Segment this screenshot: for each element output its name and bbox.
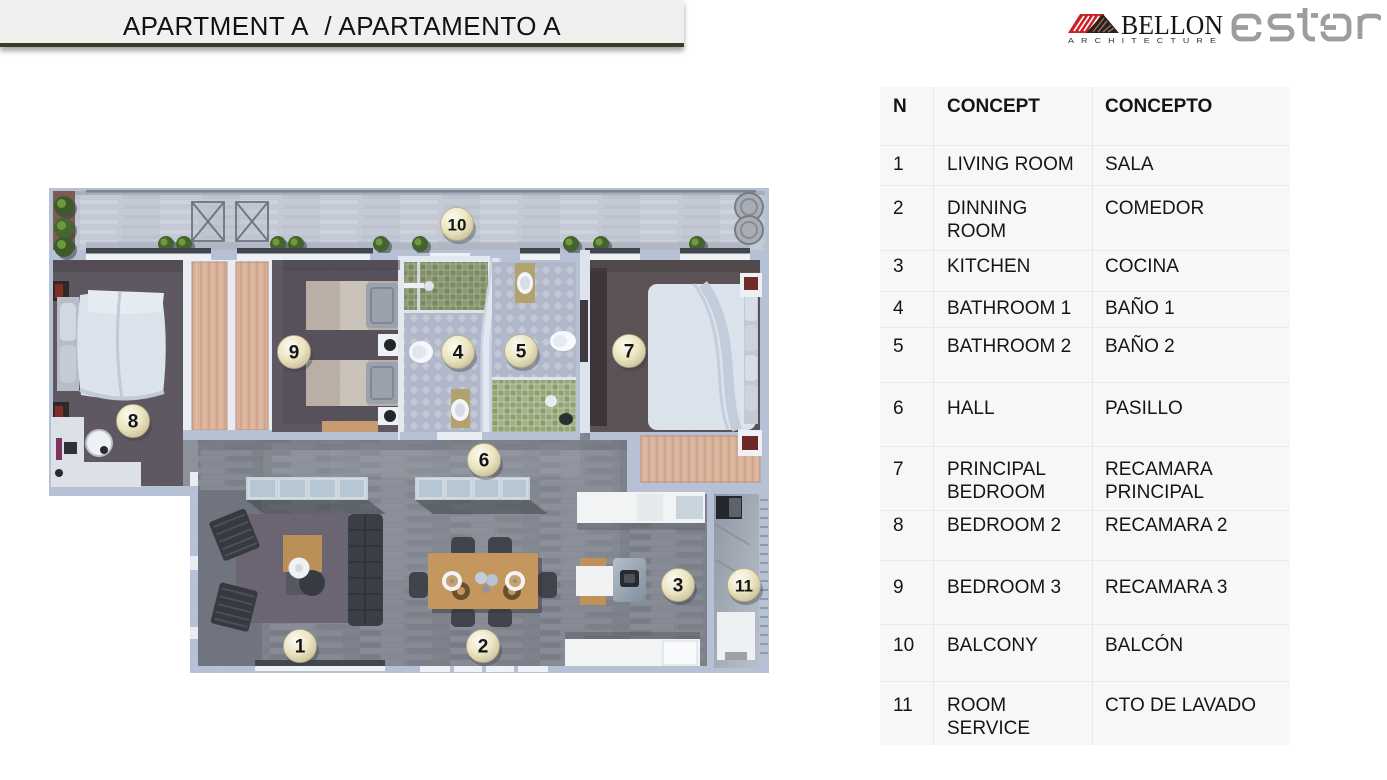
svg-text:7: 7 bbox=[624, 342, 635, 363]
svg-text:2: 2 bbox=[478, 637, 489, 658]
svg-text:9: 9 bbox=[289, 343, 300, 364]
svg-text:1: 1 bbox=[295, 637, 306, 658]
svg-text:8: 8 bbox=[128, 412, 139, 433]
svg-text:4: 4 bbox=[453, 343, 464, 364]
svg-text:10: 10 bbox=[448, 216, 467, 235]
svg-text:5: 5 bbox=[516, 342, 527, 363]
svg-text:11: 11 bbox=[735, 577, 753, 596]
svg-text:6: 6 bbox=[479, 451, 490, 472]
svg-text:3: 3 bbox=[673, 576, 684, 597]
svg-text:ARCHITECTURE: ARCHITECTURE bbox=[1068, 36, 1223, 45]
